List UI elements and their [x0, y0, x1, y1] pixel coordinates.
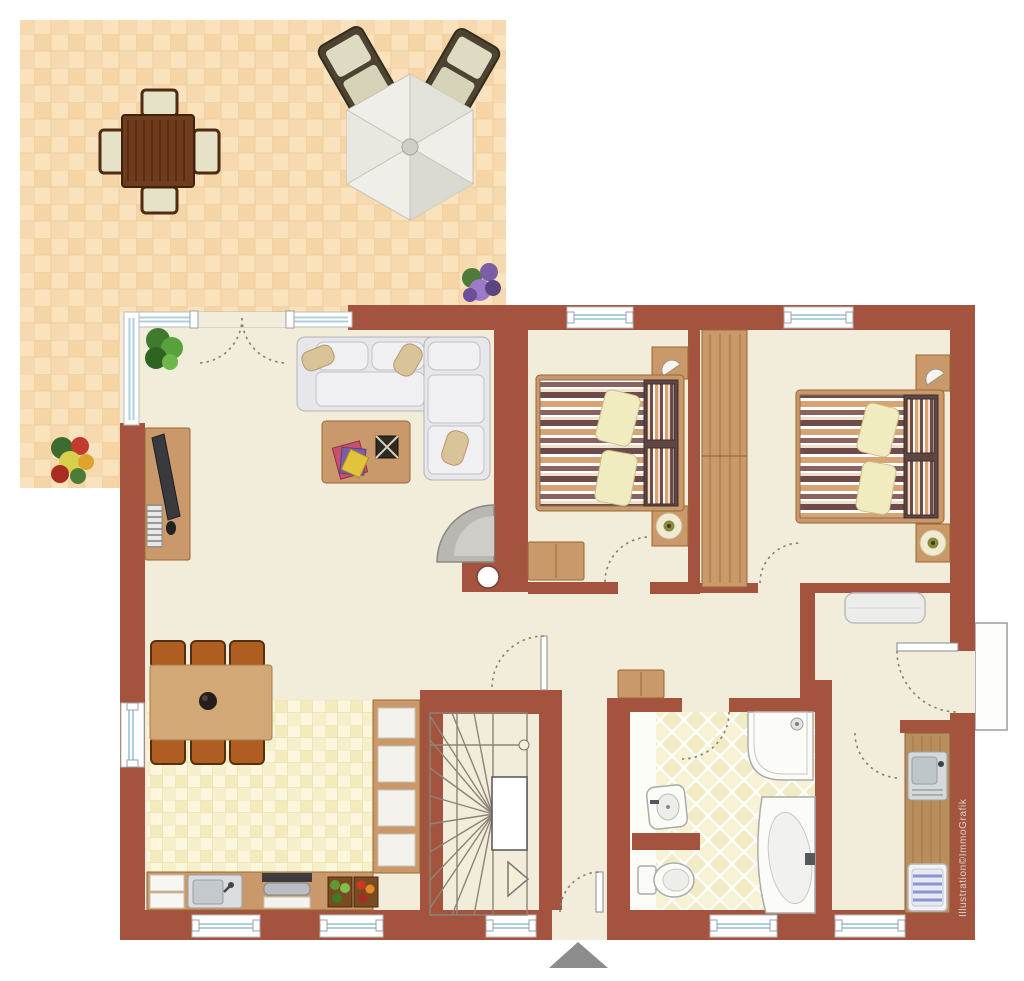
dining-set: [150, 641, 272, 764]
desk: [145, 428, 190, 560]
wall-top: [348, 305, 975, 330]
hall-storage-wall: [800, 583, 815, 703]
toilet: [638, 863, 694, 897]
vegetable-crate-green: [328, 877, 352, 907]
dining-chair: [230, 641, 264, 668]
corner-bathtub: [758, 797, 817, 913]
patio-chair: [194, 130, 219, 173]
kitchen-window-2: [320, 915, 383, 937]
outside-landing: [975, 623, 1007, 730]
kitchen-window-1: [192, 915, 260, 937]
floor-plan-canvas: Illustration©ImmoGrafik: [0, 0, 1024, 981]
dining-chair: [191, 737, 225, 764]
stove: [262, 873, 312, 908]
stair-wall-right: [539, 714, 562, 940]
dining-chair: [151, 737, 185, 764]
head-pillow: [907, 399, 934, 453]
corner-shower: [748, 712, 813, 780]
kitchen-counter: [147, 872, 378, 910]
patio-chair: [142, 90, 177, 116]
bathroom-wall-left: [607, 698, 630, 940]
mouse: [166, 521, 176, 535]
bedroom1-wall-bottom-a: [528, 582, 618, 594]
stair-wall-left: [420, 714, 443, 915]
head-pillow: [647, 384, 674, 440]
base-cabinet: [150, 893, 184, 908]
table-lamp: [656, 513, 682, 539]
stair-wall-top: [420, 690, 562, 714]
terrace-glazed-wall-side: [124, 312, 139, 425]
bath-tap: [805, 853, 815, 865]
chimney-flue: [477, 566, 499, 588]
keyboard: [147, 505, 162, 547]
wall-left: [120, 423, 145, 910]
floor-plan: Illustration©ImmoGrafik: [0, 0, 1024, 981]
dining-window: [121, 703, 144, 767]
newel-post: [519, 740, 529, 750]
vegetable-crate-red: [354, 877, 378, 907]
table-bowl: [199, 692, 217, 710]
kitchen-sink: [188, 875, 242, 908]
dining-chair: [230, 737, 264, 764]
watermark-text: Illustration©ImmoGrafik: [958, 798, 969, 917]
bathroom-wall-top-a: [630, 698, 682, 712]
bedroom2-window: [784, 307, 853, 328]
dining-chair: [191, 641, 225, 668]
living-bedroom-wall: [494, 330, 528, 592]
utility-wall-stub: [900, 720, 950, 733]
stair-landing: [492, 777, 527, 850]
stair-window: [486, 915, 536, 937]
double-bed: [536, 375, 684, 511]
bathroom-window: [710, 915, 777, 937]
utility-room: [905, 733, 950, 913]
head-pillow: [647, 448, 674, 504]
utility-window: [835, 915, 905, 937]
head-pillow: [907, 461, 934, 515]
wardrobe: [702, 330, 747, 587]
utility-sink: [908, 752, 947, 800]
table-ornament: [376, 436, 398, 458]
patio-chair: [142, 187, 177, 213]
storage-room: [845, 593, 925, 623]
dining-chair: [151, 641, 185, 668]
coffee-table: [322, 421, 410, 483]
washing-machine: [908, 864, 947, 911]
bedroom-divider-wall: [688, 330, 700, 594]
wall-right-upper: [950, 305, 975, 651]
bathroom-partition-stub: [632, 833, 700, 850]
entrance-marker: [549, 942, 608, 968]
bedroom1-wall-bottom-b: [650, 582, 688, 594]
base-cabinet: [150, 875, 184, 891]
double-bed: [796, 390, 944, 523]
bedroom1-window: [567, 307, 633, 328]
bedroom2-wall-bottom-b: [800, 583, 950, 593]
kitchen-tall-cabinets: [373, 700, 420, 873]
table-lamp: [920, 530, 946, 556]
hallway: [618, 670, 664, 698]
wash-basin: [646, 784, 688, 830]
bathroom-utility-wall: [815, 680, 832, 940]
